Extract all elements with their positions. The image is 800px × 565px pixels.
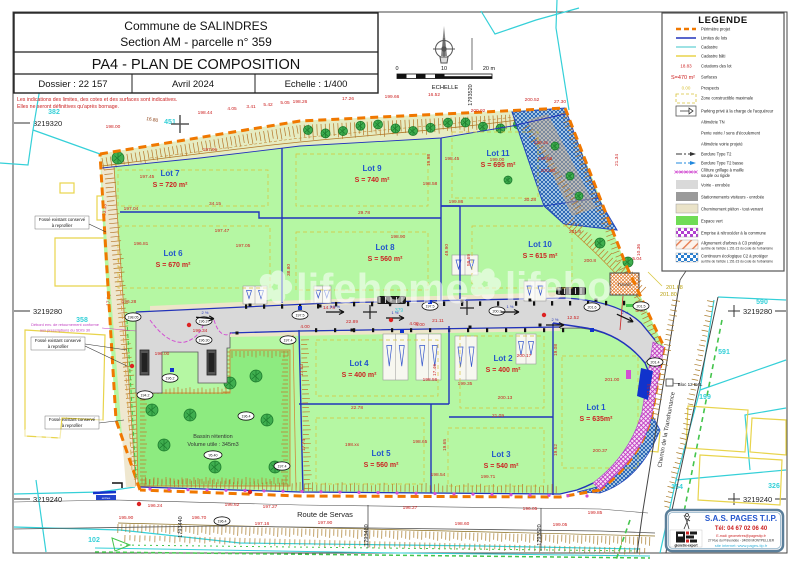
svg-text:196.27: 196.27 [403,505,418,511]
svg-text:197.05: 197.05 [236,243,251,249]
svg-text:199.71: 199.71 [481,474,496,480]
svg-text:au titre de l'article L 151-23: au titre de l'article L 151-23 du code d… [701,260,773,264]
svg-text:Transfo: Transfo [617,282,632,287]
svg-text:197.5: 197.5 [296,313,305,317]
svg-text:197.45: 197.45 [140,174,155,180]
svg-text:S.A.S. PAGES T.I.P.: S.A.S. PAGES T.I.P. [705,514,777,523]
svg-text:200.52: 200.52 [525,97,540,103]
svg-text:5.05: 5.05 [280,100,290,106]
svg-text:3219240: 3219240 [33,495,62,504]
svg-text:5.42: 5.42 [263,102,273,108]
svg-text:198.65: 198.65 [413,439,428,445]
svg-text:lifehome: lifehome [296,265,469,312]
svg-text:1793440: 1793440 [178,516,184,537]
svg-text:site internet: www.pages-tip.f: site internet: www.pages-tip.fr [715,543,768,548]
svg-text:0.00: 0.00 [682,86,691,91]
svg-text:2 %: 2 % [552,317,559,322]
svg-text:Limites de lots: Limites de lots [701,36,727,41]
svg-text:20 m: 20 m [483,66,496,72]
svg-text:Voirie - enrobée: Voirie - enrobée [701,183,731,188]
svg-text:95.40: 95.40 [209,453,218,457]
svg-text:197.4: 197.4 [284,338,293,342]
svg-text:201.6: 201.6 [569,229,581,235]
svg-text:Espace vert: Espace vert [701,219,723,224]
svg-text:196.81: 196.81 [134,241,149,247]
svg-text:Cotations des lot: Cotations des lot [701,64,732,69]
svg-text:19.98: 19.98 [426,154,432,166]
svg-text:198.26: 198.26 [293,99,308,105]
svg-text:27 Rue du Prévondée - 34090 MO: 27 Rue du Prévondée - 34090 MONTPELLIER [708,539,775,543]
svg-text:201.4: 201.4 [651,360,660,364]
svg-text:196.00: 196.00 [155,351,170,357]
svg-text:194.2: 194.2 [141,393,150,397]
svg-text:17.46: 17.46 [432,364,438,376]
svg-text:201.68: 201.68 [666,285,683,291]
svg-text:196.24: 196.24 [148,503,163,509]
svg-text:200.13: 200.13 [498,395,513,401]
svg-text:Lot 7: Lot 7 [160,169,180,178]
svg-text:souple ou rigide: souple ou rigide [701,173,731,178]
svg-text:S = 695 m²: S = 695 m² [481,162,516,169]
svg-text:2 %: 2 % [622,310,629,315]
svg-text:2 %: 2 % [202,310,209,315]
svg-text:19.08: 19.08 [553,344,559,356]
svg-text:196.30: 196.30 [199,338,210,342]
svg-text:201.00: 201.00 [605,377,620,383]
svg-text:Fossé existant conservé: Fossé existant conservé [35,338,82,343]
svg-text:à reprofiler: à reprofiler [62,423,83,428]
svg-text:Bordure Type T2: Bordure Type T2 [701,152,732,157]
svg-text:Section AM - parcelle n° 359: Section AM - parcelle n° 359 [120,35,272,49]
svg-text:Route de Servas: Route de Servas [297,510,353,519]
svg-text:Lot 11: Lot 11 [486,149,510,158]
svg-text:200.50: 200.50 [541,168,556,174]
svg-text:Débord env. de retournement co: Débord env. de retournement conforme [31,322,99,327]
svg-text:Prospects: Prospects [701,86,719,91]
svg-text:199.00: 199.00 [490,157,505,163]
svg-text:10.36: 10.36 [636,244,642,256]
svg-text:3219320: 3219320 [33,119,62,128]
svg-text:E-mail: geometres@pagestip.fr: E-mail: geometres@pagestip.fr [716,534,766,538]
svg-text:Lot 6: Lot 6 [163,249,183,258]
svg-text:17.14: 17.14 [646,384,652,396]
svg-text:ECHELLE: ECHELLE [432,85,459,91]
svg-text:Cheminement piéton - tout-vena: Cheminement piéton - tout-venant [701,207,764,212]
svg-text:S = 670 m²: S = 670 m² [156,262,191,269]
svg-text:1793480: 1793480 [364,524,370,545]
svg-text:21.09: 21.09 [492,413,504,419]
svg-text:Les indications des limites, d: Les indications des limites, des cotes e… [17,97,177,103]
svg-text:Fossé existant conservé: Fossé existant conservé [49,417,96,422]
svg-text:0: 0 [395,66,398,72]
svg-text:196.28: 196.28 [122,299,137,305]
svg-text:30.28: 30.28 [524,197,536,203]
svg-text:19.52: 19.52 [553,444,559,456]
svg-text:Zone constructible maximale: Zone constructible maximale [701,96,754,101]
svg-text:198.90: 198.90 [391,234,406,240]
svg-text:Lot 4: Lot 4 [349,359,369,368]
svg-text:197.4: 197.4 [278,464,287,468]
svg-text:198.58: 198.58 [538,156,553,162]
svg-text:S = 740 m²: S = 740 m² [355,177,390,184]
svg-text:S = 615 m²: S = 615 m² [523,253,558,260]
svg-text:Altimétrie voirie projeté: Altimétrie voirie projeté [701,142,743,147]
svg-text:LEGENDE: LEGENDE [698,15,747,26]
svg-text:Dossier : 22 157: Dossier : 22 157 [38,79,107,90]
svg-text:10: 10 [441,66,447,72]
svg-text:Pente voirie / sens d'écouleme: Pente voirie / sens d'écoulement [701,131,761,136]
svg-text:451: 451 [164,119,176,126]
svg-text:Cadastre bâti: Cadastre bâti [701,54,725,59]
svg-text:17.63: 17.63 [299,364,305,376]
svg-text:196.34: 196.34 [193,328,208,334]
svg-text:22.89: 22.89 [346,319,358,325]
svg-text:à reprofiler: à reprofiler [48,344,69,349]
svg-text:3219280: 3219280 [743,307,772,316]
svg-text:196.37: 196.37 [199,319,210,323]
svg-text:4.00: 4.00 [415,322,425,328]
svg-text:Lot 3: Lot 3 [491,450,511,459]
svg-text:199.85: 199.85 [588,510,603,516]
svg-text:197.27: 197.27 [263,504,278,510]
svg-text:198.05: 198.05 [128,315,139,319]
svg-text:à reprofiler: à reprofiler [52,223,73,228]
svg-text:198.44: 198.44 [198,110,213,116]
svg-text:38.80: 38.80 [286,264,292,276]
svg-text:17.74: 17.74 [301,439,307,451]
svg-text:22.78: 22.78 [351,405,363,411]
svg-text:Bassin rétention: Bassin rétention [193,434,232,440]
svg-text:201.5: 201.5 [637,304,646,308]
svg-text:196.4: 196.4 [218,519,227,523]
svg-text:S = 720 m²: S = 720 m² [153,182,188,189]
svg-text:199: 199 [699,394,711,401]
svg-text:Lot 10: Lot 10 [528,240,552,249]
svg-text:12.52: 12.52 [567,315,579,321]
svg-text:198.56: 198.56 [423,377,438,383]
svg-text:197.16: 197.16 [255,521,270,527]
svg-text:Clôture grillage à maille: Clôture grillage à maille [701,168,744,173]
svg-text:Commune de SALINDRES: Commune de SALINDRES [124,19,267,33]
svg-text:Bloc 12 BAL: Bloc 12 BAL [678,382,703,387]
svg-text:3219280: 3219280 [33,307,62,316]
svg-text:590: 590 [756,299,768,306]
svg-text:195.90: 195.90 [119,515,134,521]
svg-text:29.78: 29.78 [358,210,370,216]
svg-text:1793520: 1793520 [468,84,474,105]
svg-text:Bordure Type T2 basse: Bordure Type T2 basse [701,161,744,166]
svg-text:196.62: 196.62 [225,502,240,508]
svg-text:Surfaces: Surfaces [701,75,717,80]
svg-text:Périmètre projet: Périmètre projet [701,27,731,32]
svg-text:591: 591 [718,349,730,356]
svg-text:S=470 m²: S=470 m² [671,75,695,81]
svg-text:S = 560 m²: S = 560 m² [364,462,399,469]
svg-text:S = 635m²: S = 635m² [580,416,614,423]
svg-text:199.86: 199.86 [449,199,464,205]
svg-text:Continuum écologique C2 à prot: Continuum écologique C2 à protéger [701,254,769,259]
svg-text:Parking privé à la charge de l: Parking privé à la charge de l'acquéreur [701,109,774,114]
svg-text:Lot 2: Lot 2 [493,354,513,363]
svg-text:21.11: 21.11 [432,318,444,324]
svg-text:198.54: 198.54 [431,472,446,478]
svg-text:16.52: 16.52 [428,92,440,98]
svg-text:S = 540 m²: S = 540 m² [484,463,519,470]
svg-text:198.xx: 198.xx [345,442,360,448]
svg-text:lifeho: lifeho [505,265,612,309]
svg-text:Elles ne seront définitives qu: Elles ne seront définitives qu'après bor… [17,104,119,110]
svg-text:198.00: 198.00 [106,124,121,130]
svg-text:au titre de l'article L 151-23: au titre de l'article L 151-23 du code d… [701,247,773,251]
svg-text:49.90: 49.90 [444,244,450,256]
svg-text:196.05: 196.05 [523,506,538,512]
svg-text:200.3: 200.3 [493,309,502,313]
svg-text:Tél: 04 67 02 06 40: Tél: 04 67 02 06 40 [715,526,768,532]
svg-text:PA4 - PLAN DE COMPOSITION: PA4 - PLAN DE COMPOSITION [92,57,300,73]
svg-text:197.91: 197.91 [203,147,218,153]
svg-text:198.45: 198.45 [445,156,460,162]
svg-text:S = 560 m²: S = 560 m² [368,256,403,263]
svg-text:Lot 5: Lot 5 [371,449,391,458]
svg-text:200.8: 200.8 [584,258,596,264]
svg-text:21.34: 21.34 [614,154,620,166]
svg-text:Alignement d'arbres à C3 proté: Alignement d'arbres à C3 protéger [701,241,764,246]
svg-text:200.37: 200.37 [593,448,608,454]
svg-text:Stationnements visiteurs - enr: Stationnements visiteurs - enrobée [701,195,765,200]
svg-text:3.41: 3.41 [246,104,256,110]
svg-text:1793520: 1793520 [537,524,543,545]
svg-text:199.05: 199.05 [553,522,568,528]
svg-text:200.17: 200.17 [517,353,532,359]
svg-text:4.05: 4.05 [227,106,237,112]
svg-text:Volume utile : 345m3: Volume utile : 345m3 [187,442,238,448]
svg-text:Fossé existant conservé: Fossé existant conservé [39,217,86,222]
svg-text:Lot 8: Lot 8 [375,243,395,252]
svg-text:Lot 1: Lot 1 [586,403,606,412]
svg-text:326: 326 [768,483,780,490]
svg-text:17.26: 17.26 [342,96,354,102]
svg-text:198.58: 198.58 [423,181,438,187]
svg-text:200.02: 200.02 [471,108,486,114]
svg-text:196.70: 196.70 [192,515,207,521]
svg-text:S = 400 m²: S = 400 m² [486,367,521,374]
svg-text:18.83: 18.83 [680,64,692,69]
svg-text:200.4x: 200.4x [534,140,549,146]
svg-text:Cadastre: Cadastre [701,45,718,50]
svg-text:198.60: 198.60 [455,521,470,527]
svg-text:102: 102 [88,537,100,544]
svg-text:197.90: 197.90 [318,520,333,526]
svg-text:382: 382 [48,109,60,116]
svg-text:S = 400 m²: S = 400 m² [342,372,377,379]
svg-text:Altimétrie TN: Altimétrie TN [701,120,725,125]
svg-text:glenetre-expert: glenetre-expert [674,544,698,548]
svg-text:196.2: 196.2 [166,376,175,380]
svg-text:196.4: 196.4 [242,414,251,418]
svg-text:Emprise à rétrocéder à la comm: Emprise à rétrocéder à la commune [701,231,767,236]
svg-text:Lot 9: Lot 9 [362,164,382,173]
svg-text:199.66: 199.66 [385,94,400,100]
svg-text:34.15: 34.15 [209,201,221,207]
svg-text:Avril 2024: Avril 2024 [172,79,214,90]
svg-text:aux prescriptions du SDIS 30: aux prescriptions du SDIS 30 [40,328,91,333]
svg-text:199.35: 199.35 [458,381,473,387]
svg-text:19.65: 19.65 [442,439,448,451]
svg-text:197.04: 197.04 [124,206,139,212]
svg-text:27.30: 27.30 [554,99,566,105]
svg-text:197.47: 197.47 [215,228,230,234]
svg-text:4.00: 4.00 [300,324,310,330]
svg-text:201.80: 201.80 [660,292,677,298]
svg-text:entree: entree [102,496,111,500]
svg-text:Echelle : 1/400: Echelle : 1/400 [285,79,348,90]
